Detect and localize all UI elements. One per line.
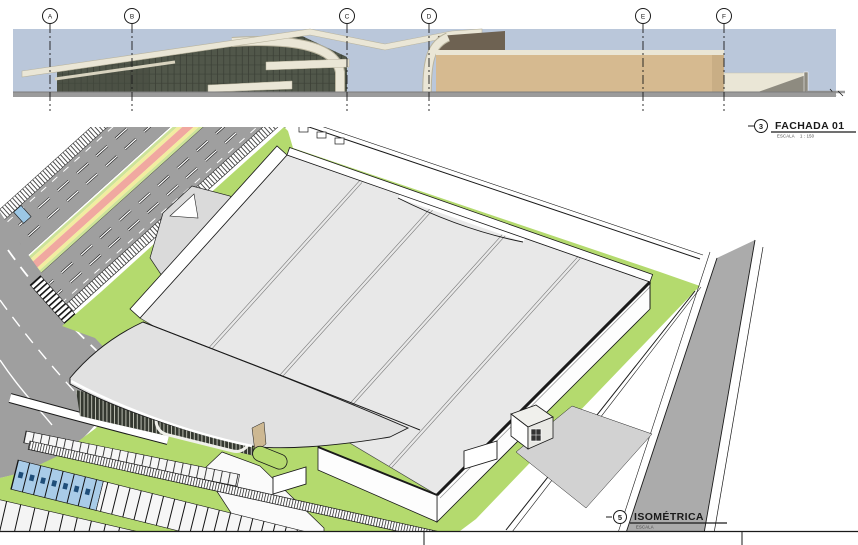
ground-strip <box>13 92 836 97</box>
title-block-edge <box>0 532 858 545</box>
drawing-sheet: A B C D E F 3 FACHADA 01 ESCALA 1 : 150 <box>0 0 858 545</box>
fachada-title-text: FACHADA 01 <box>775 120 845 132</box>
sheet-canvas: A B C D E F 3 FACHADA 01 ESCALA 1 : 150 <box>0 0 858 545</box>
grid-bubble-f: F <box>717 9 732 24</box>
grid-bubble-d: D <box>422 9 437 24</box>
grid-bubble-b: B <box>125 9 140 24</box>
isometrica-ref-number: 5 <box>618 513 622 522</box>
svg-text:F: F <box>722 14 726 21</box>
isometrica-scale-label: ESCALA <box>636 525 654 530</box>
svg-text:D: D <box>427 14 432 21</box>
grid-bubble-e: E <box>636 9 651 24</box>
fachada-scale-value: 1 : 150 <box>800 134 815 139</box>
fachada-scale-label: ESCALA <box>777 134 795 139</box>
svg-text:C: C <box>345 14 350 21</box>
svg-text:A: A <box>48 14 53 21</box>
warehouse-elevation <box>436 50 724 93</box>
fachada-title: 3 FACHADA 01 ESCALA 1 : 150 <box>748 120 856 139</box>
grid-bubble-a: A <box>43 9 58 24</box>
elevation-view: A B C D E F 3 FACHADA 01 ESCALA 1 : 150 <box>13 9 856 139</box>
grid-bubble-c: C <box>340 9 355 24</box>
isometrica-title-text: ISOMÉTRICA <box>634 510 704 523</box>
fachada-ref-number: 3 <box>759 122 763 131</box>
grid-bubbles: A B C D E F <box>43 9 732 24</box>
svg-text:E: E <box>641 14 646 21</box>
svg-text:B: B <box>130 14 134 21</box>
